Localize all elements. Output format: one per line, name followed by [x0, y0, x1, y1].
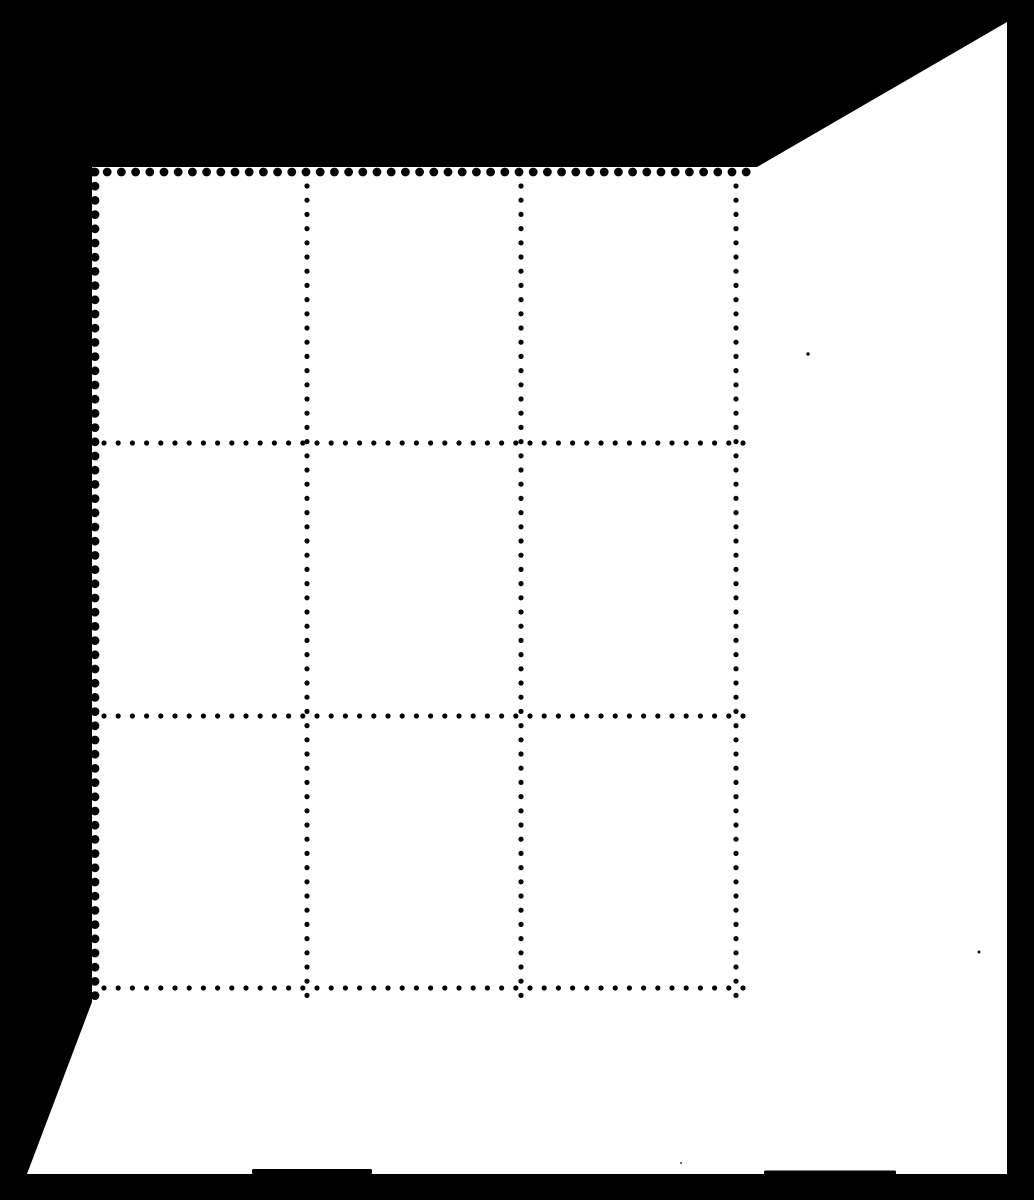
- perforation-hole: [733, 482, 738, 487]
- perforation-hole: [518, 808, 523, 813]
- perforation-hole: [202, 168, 211, 177]
- perforation-hole: [91, 423, 100, 432]
- perforation-hole: [144, 713, 149, 718]
- perforation-hole: [91, 239, 100, 248]
- perforation-hole: [485, 985, 490, 990]
- perforation-hole: [304, 254, 309, 259]
- perforation-hole: [116, 985, 121, 990]
- perforation-hole: [518, 737, 523, 742]
- perforation-hole: [655, 985, 660, 990]
- perforation-hole: [518, 950, 523, 955]
- perforation-hole: [698, 713, 703, 718]
- perforation-hole: [400, 985, 405, 990]
- perforation-hole: [740, 713, 745, 718]
- perforation-hole: [144, 440, 149, 445]
- perforation-hole: [304, 993, 309, 998]
- perforation-hole: [472, 168, 481, 177]
- perforation-hole: [304, 979, 309, 984]
- perforation-hole: [91, 679, 100, 688]
- perforation-hole: [304, 851, 309, 856]
- perforation-hole: [91, 523, 100, 532]
- perforation-hole: [300, 440, 305, 445]
- perforation-hole: [456, 985, 461, 990]
- perforation-hole: [91, 807, 100, 816]
- perforation-hole: [733, 666, 738, 671]
- perforation-hole: [456, 713, 461, 718]
- perforation-hole: [713, 168, 722, 177]
- perforation-hole: [91, 480, 100, 489]
- perforation-hole: [91, 906, 100, 915]
- perforation-hole: [304, 269, 309, 274]
- perforation-hole: [518, 581, 523, 586]
- perforation-hole: [91, 267, 100, 276]
- perforation-hole: [518, 240, 523, 245]
- perforation-hole: [243, 440, 248, 445]
- perforation-hole: [669, 713, 674, 718]
- perforation-hole: [733, 723, 738, 728]
- perforation-hole: [733, 368, 738, 373]
- perforation-hole: [518, 936, 523, 941]
- perforation-hole: [304, 865, 309, 870]
- perforation-hole: [304, 297, 309, 302]
- perforation-hole: [428, 985, 433, 990]
- perforation-hole: [586, 168, 595, 177]
- perforation-hole: [273, 168, 282, 177]
- perforation-hole: [598, 985, 603, 990]
- perforation-hole: [91, 338, 100, 347]
- perforation-hole: [91, 892, 100, 901]
- perforation-hole: [518, 993, 523, 998]
- perforation-hole: [343, 440, 348, 445]
- perforation-hole: [471, 713, 476, 718]
- perforation-hole: [518, 837, 523, 842]
- perforation-hole: [733, 311, 738, 316]
- perforation-hole: [91, 352, 100, 361]
- perforation-hole: [304, 808, 309, 813]
- perforation-hole: [304, 822, 309, 827]
- perforation-hole: [518, 964, 523, 969]
- perforation-hole: [160, 168, 169, 177]
- perforation-hole: [556, 713, 561, 718]
- perforation-hole: [518, 368, 523, 373]
- perforation-hole: [733, 510, 738, 515]
- perforation-hole: [358, 168, 367, 177]
- perforation-hole: [684, 440, 689, 445]
- perforation-hole: [304, 354, 309, 359]
- perforation-hole: [304, 837, 309, 842]
- perforation-hole: [304, 638, 309, 643]
- stamp-scan-stage: [0, 0, 1034, 1200]
- perforation-hole: [357, 985, 362, 990]
- perforation-hole: [258, 440, 263, 445]
- perforation-hole: [733, 609, 738, 614]
- perforation-hole: [357, 713, 362, 718]
- perforation-hole: [201, 440, 206, 445]
- perforation-hole: [627, 440, 632, 445]
- perforation-hole: [258, 985, 263, 990]
- perforation-hole: [116, 713, 121, 718]
- perforation-hole: [91, 991, 100, 1000]
- perforation-hole: [304, 780, 309, 785]
- perforation-hole: [712, 440, 717, 445]
- dust-speck: [680, 1162, 682, 1164]
- scan-edge-smudge: [764, 1171, 896, 1175]
- perforation-hole: [733, 780, 738, 785]
- perforation-hole: [613, 440, 618, 445]
- perforation-hole: [527, 985, 532, 990]
- perforation-hole: [304, 467, 309, 472]
- perforation-hole: [518, 879, 523, 884]
- perforation-hole: [91, 224, 100, 233]
- perforation-hole: [733, 680, 738, 685]
- perforation-hole: [733, 467, 738, 472]
- perforation-hole: [518, 467, 523, 472]
- perforation-hole: [733, 340, 738, 345]
- perforation-hole: [385, 713, 390, 718]
- perforation-hole: [187, 985, 192, 990]
- perforation-hole: [371, 985, 376, 990]
- perforation-hole: [733, 226, 738, 231]
- perforation-hole: [733, 595, 738, 600]
- perforation-hole: [733, 283, 738, 288]
- perforation-hole: [518, 567, 523, 572]
- perforation-hole: [101, 985, 106, 990]
- perforation-hole: [243, 985, 248, 990]
- perforation-hole: [400, 440, 405, 445]
- perforation-hole: [215, 440, 220, 445]
- perforation-hole: [314, 440, 319, 445]
- perforation-hole: [304, 794, 309, 799]
- perforation-hole: [158, 985, 163, 990]
- perforation-hole: [287, 168, 296, 177]
- perforation-hole: [628, 168, 637, 177]
- perforation-hole: [304, 766, 309, 771]
- perforation-hole: [286, 440, 291, 445]
- perforation-hole: [442, 440, 447, 445]
- perforation-hole: [91, 665, 100, 674]
- perforation-hole: [304, 524, 309, 529]
- perforation-hole: [518, 780, 523, 785]
- perforation-hole: [91, 764, 100, 773]
- perforation-hole: [91, 721, 100, 730]
- perforation-hole: [91, 281, 100, 290]
- perforation-hole: [329, 713, 334, 718]
- perforation-hole: [304, 340, 309, 345]
- perforation-hole: [657, 168, 666, 177]
- perforation-hole: [304, 666, 309, 671]
- perforation-hole: [304, 311, 309, 316]
- perforation-hole: [712, 985, 717, 990]
- perforation-hole: [387, 168, 396, 177]
- perforation-hole: [91, 636, 100, 645]
- perforation-hole: [557, 168, 566, 177]
- perforation-hole: [91, 821, 100, 830]
- perforation-hole: [144, 985, 149, 990]
- perforation-hole: [343, 713, 348, 718]
- perforation-hole: [304, 893, 309, 898]
- perforation-hole: [131, 168, 140, 177]
- perforation-hole: [91, 310, 100, 319]
- perforation-hole: [518, 553, 523, 558]
- perforation-hole: [304, 425, 309, 430]
- perforation-hole: [400, 713, 405, 718]
- perforation-hole: [518, 652, 523, 657]
- perforation-hole: [733, 922, 738, 927]
- perforation-hole: [712, 713, 717, 718]
- perforation-hole: [518, 922, 523, 927]
- perforation-hole: [556, 440, 561, 445]
- perforation-hole: [733, 382, 738, 387]
- perforation-hole: [733, 652, 738, 657]
- perforation-hole: [518, 183, 523, 188]
- perforation-hole: [91, 565, 100, 574]
- perforation-hole: [518, 482, 523, 487]
- perforation-hole: [733, 936, 738, 941]
- perforation-hole: [543, 168, 552, 177]
- perforation-hole: [456, 440, 461, 445]
- perforation-hole: [518, 524, 523, 529]
- perforation-hole: [174, 168, 183, 177]
- perforation-hole: [91, 437, 100, 446]
- perforation-hole: [304, 553, 309, 558]
- perforation-hole: [518, 751, 523, 756]
- perforation-hole: [158, 440, 163, 445]
- perforation-hole: [414, 440, 419, 445]
- perforation-hole: [518, 269, 523, 274]
- perforation-hole: [518, 510, 523, 515]
- perforation-hole: [329, 985, 334, 990]
- perforation-hole: [304, 879, 309, 884]
- perforation-hole: [304, 609, 309, 614]
- perforation-hole: [91, 622, 100, 631]
- perforation-hole: [733, 893, 738, 898]
- perforation-hole: [542, 713, 547, 718]
- perforation-hole: [684, 985, 689, 990]
- perforation-hole: [518, 851, 523, 856]
- perforation-hole: [733, 695, 738, 700]
- perforation-hole: [304, 723, 309, 728]
- perforation-hole: [116, 440, 121, 445]
- perforation-hole: [733, 581, 738, 586]
- perforation-hole: [733, 396, 738, 401]
- perforation-hole: [272, 985, 277, 990]
- perforation-hole: [357, 440, 362, 445]
- perforation-hole: [444, 168, 453, 177]
- perforation-hole: [158, 713, 163, 718]
- perforation-hole: [733, 837, 738, 842]
- perforation-hole: [733, 325, 738, 330]
- perforation-hole: [91, 168, 100, 177]
- perforation-hole: [513, 985, 518, 990]
- perforation-hole: [733, 808, 738, 813]
- perforation-hole: [187, 440, 192, 445]
- perforation-hole: [91, 778, 100, 787]
- perforation-hole: [733, 183, 738, 188]
- perforation-hole: [486, 168, 495, 177]
- perforation-hole: [527, 440, 532, 445]
- perforation-hole: [215, 985, 220, 990]
- perforation-hole: [641, 985, 646, 990]
- perforation-hole: [518, 680, 523, 685]
- perforation-hole: [91, 366, 100, 375]
- perforation-hole: [518, 198, 523, 203]
- perforation-hole: [518, 212, 523, 217]
- perforation-hole: [641, 440, 646, 445]
- perforation-hole: [302, 168, 311, 177]
- perforation-hole: [518, 595, 523, 600]
- perforation-hole: [733, 254, 738, 259]
- perforation-hole: [442, 985, 447, 990]
- perforation-hole: [518, 822, 523, 827]
- perforation-hole: [518, 496, 523, 501]
- perforation-hole: [513, 713, 518, 718]
- perforation-hole: [304, 709, 309, 714]
- perforation-hole: [669, 985, 674, 990]
- perforation-hole: [91, 736, 100, 745]
- perforation-hole: [188, 168, 197, 177]
- perforation-hole: [733, 240, 738, 245]
- perforation-hole: [728, 168, 737, 177]
- perforation-hole: [172, 713, 177, 718]
- perforation-hole: [373, 168, 382, 177]
- perforation-hole: [733, 553, 738, 558]
- perforation-hole: [91, 863, 100, 872]
- perforation-hole: [699, 168, 708, 177]
- perforation-hole: [304, 496, 309, 501]
- perforation-hole: [518, 979, 523, 984]
- perforation-hole: [91, 324, 100, 333]
- perforation-hole: [733, 411, 738, 416]
- perforation-hole: [698, 440, 703, 445]
- perforation-hole: [669, 440, 674, 445]
- perforation-hole: [385, 440, 390, 445]
- perforation-hole: [304, 368, 309, 373]
- perforation-hole: [529, 168, 538, 177]
- perforation-hole: [726, 985, 731, 990]
- perforation-hole: [117, 168, 126, 177]
- perforation-hole: [304, 510, 309, 515]
- perforation-hole: [304, 595, 309, 600]
- perforation-hole: [733, 964, 738, 969]
- perforation-hole: [518, 382, 523, 387]
- perforation-hole: [272, 440, 277, 445]
- perforation-hole: [91, 381, 100, 390]
- perforation-hole: [726, 713, 731, 718]
- perforation-hole: [304, 198, 309, 203]
- perforation-hole: [584, 440, 589, 445]
- perforation-hole: [500, 168, 509, 177]
- perforation-hole: [733, 624, 738, 629]
- perforation-hole: [91, 693, 100, 702]
- perforation-hole: [304, 283, 309, 288]
- perforation-hole: [414, 985, 419, 990]
- perforation-hole: [91, 551, 100, 560]
- perforation-hole: [243, 713, 248, 718]
- perforation-hole: [733, 425, 738, 430]
- perforation-hole: [518, 439, 523, 444]
- perforation-hole: [91, 253, 100, 262]
- perforation-hole: [414, 713, 419, 718]
- perforation-hole: [655, 440, 660, 445]
- perforation-hole: [518, 254, 523, 259]
- perforation-hole: [627, 713, 632, 718]
- perforation-hole: [627, 985, 632, 990]
- perforation-hole: [518, 226, 523, 231]
- dust-speck: [806, 352, 809, 355]
- perforation-hole: [91, 920, 100, 929]
- perforation-hole: [518, 666, 523, 671]
- perforation-hole: [733, 822, 738, 827]
- perforation-hole: [304, 240, 309, 245]
- perforation-hole: [314, 985, 319, 990]
- perforation-hole: [231, 168, 240, 177]
- perforation-hole: [91, 210, 100, 219]
- perforation-hole: [518, 340, 523, 345]
- perforation-hole: [733, 198, 738, 203]
- perforation-hole: [304, 950, 309, 955]
- perforation-hole: [130, 440, 135, 445]
- perforation-hole: [304, 382, 309, 387]
- perforation-hole: [91, 537, 100, 546]
- perforation-hole: [614, 168, 623, 177]
- perforation-hole: [304, 908, 309, 913]
- perforation-hole: [300, 985, 305, 990]
- perforation-hole: [429, 168, 438, 177]
- perforation-hole: [304, 695, 309, 700]
- perforation-hole: [91, 963, 100, 972]
- perforation-hole: [733, 538, 738, 543]
- perforation-hole: [518, 766, 523, 771]
- perforation-hole: [499, 440, 504, 445]
- perforation-hole: [499, 713, 504, 718]
- perforation-hole: [91, 878, 100, 887]
- perforation-hole: [304, 212, 309, 217]
- perforation-hole: [542, 440, 547, 445]
- perforation-hole: [272, 713, 277, 718]
- perforation-hole: [304, 396, 309, 401]
- perforation-hole: [733, 865, 738, 870]
- perforation-hole: [733, 524, 738, 529]
- perforation-hole: [613, 985, 618, 990]
- perforation-hole: [598, 440, 603, 445]
- perforation-hole: [304, 411, 309, 416]
- perforation-hole: [518, 538, 523, 543]
- perforation-hole: [91, 792, 100, 801]
- perforation-hole: [740, 985, 745, 990]
- perforation-hole: [245, 168, 254, 177]
- perforation-hole: [570, 713, 575, 718]
- perforation-hole: [145, 168, 154, 177]
- perforation-hole: [733, 269, 738, 274]
- perforation-hole: [91, 452, 100, 461]
- perforation-hole: [733, 794, 738, 799]
- perforation-hole: [304, 325, 309, 330]
- perforation-hole: [91, 196, 100, 205]
- perforation-hole: [518, 297, 523, 302]
- perforation-hole: [343, 985, 348, 990]
- stamp-sheet: [27, 22, 1007, 1174]
- perforation-hole: [733, 709, 738, 714]
- perforation-hole: [304, 453, 309, 458]
- perforation-hole: [229, 985, 234, 990]
- perforation-hole: [91, 949, 100, 958]
- perforation-hole: [733, 950, 738, 955]
- perforation-hole: [671, 168, 680, 177]
- perforation-hole: [216, 168, 225, 177]
- perforation-hole: [229, 440, 234, 445]
- perforation-hole: [570, 440, 575, 445]
- perforation-hole: [130, 713, 135, 718]
